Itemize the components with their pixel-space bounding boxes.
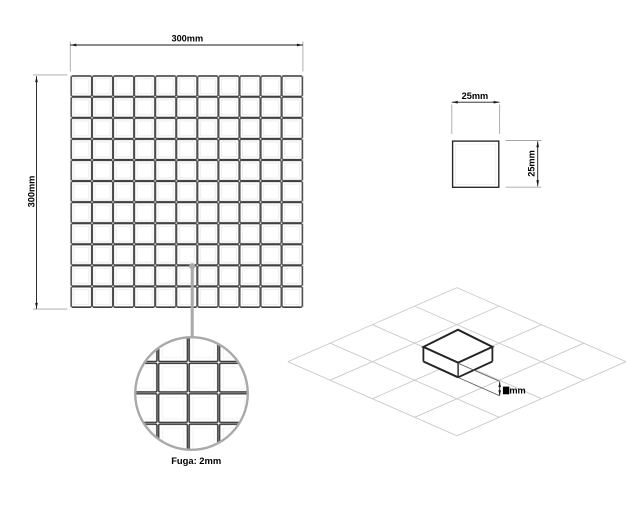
svg-text:300mm: 300mm (27, 176, 37, 208)
svg-text:25mm: 25mm (526, 150, 536, 177)
svg-text:25mm: 25mm (462, 91, 489, 101)
svg-text:mm: mm (509, 386, 525, 396)
svg-text:300mm: 300mm (171, 33, 203, 43)
svg-text:Fuga: 2mm: Fuga: 2mm (171, 455, 221, 466)
